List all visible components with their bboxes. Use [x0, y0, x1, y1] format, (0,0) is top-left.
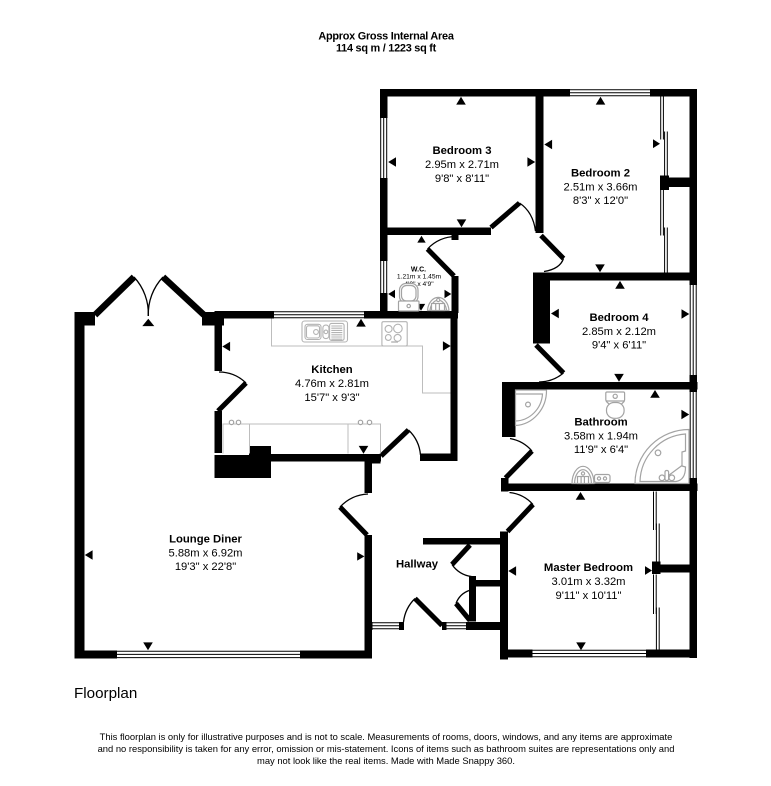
- svg-text:5.88m x 6.92m: 5.88m x 6.92m: [169, 547, 243, 559]
- svg-text:1.21m x 1.45m: 1.21m x 1.45m: [397, 274, 442, 281]
- svg-text:W.C.: W.C.: [411, 266, 426, 273]
- svg-text:2.95m x 2.71m: 2.95m x 2.71m: [425, 159, 499, 171]
- svg-text:and no responsibility is taken: and no responsibility is taken for any e…: [98, 743, 675, 754]
- svg-text:15'7" x 9'3": 15'7" x 9'3": [304, 392, 359, 404]
- svg-text:19'3" x 22'8": 19'3" x 22'8": [175, 561, 236, 573]
- svg-text:Bedroom 2: Bedroom 2: [571, 168, 630, 180]
- svg-text:may not look like the real ite: may not look like the real items. Made w…: [257, 755, 515, 766]
- svg-text:Bedroom 3: Bedroom 3: [432, 145, 491, 157]
- svg-text:Master Bedroom: Master Bedroom: [544, 562, 633, 574]
- svg-text:3.58m x 1.94m: 3.58m x 1.94m: [564, 430, 638, 442]
- svg-text:9'4" x 6'11": 9'4" x 6'11": [592, 340, 646, 352]
- svg-text:Bedroom 4: Bedroom 4: [589, 312, 649, 324]
- svg-text:2.85m x 2.12m: 2.85m x 2.12m: [582, 326, 656, 338]
- svg-text:Hallway: Hallway: [396, 558, 439, 570]
- svg-text:Approx Gross Internal Area: Approx Gross Internal Area: [318, 30, 455, 42]
- svg-text:2.51m x 3.66m: 2.51m x 3.66m: [564, 181, 638, 193]
- svg-text:4.76m x 2.81m: 4.76m x 2.81m: [295, 378, 369, 390]
- svg-text:11'9" x 6'4": 11'9" x 6'4": [574, 444, 628, 456]
- svg-text:This floorplan is only for ill: This floorplan is only for illustrative …: [100, 731, 673, 742]
- svg-text:Lounge Diner: Lounge Diner: [169, 533, 242, 545]
- svg-text:Kitchen: Kitchen: [311, 364, 353, 376]
- svg-text:Floorplan: Floorplan: [74, 685, 137, 702]
- svg-text:9'11" x 10'11": 9'11" x 10'11": [556, 590, 622, 602]
- svg-text:8'3" x 12'0": 8'3" x 12'0": [573, 195, 628, 207]
- svg-text:3.01m x 3.32m: 3.01m x 3.32m: [552, 576, 626, 588]
- svg-text:114 sq m / 1223 sq ft: 114 sq m / 1223 sq ft: [336, 42, 437, 54]
- svg-text:9'8" x 8'11": 9'8" x 8'11": [435, 173, 489, 185]
